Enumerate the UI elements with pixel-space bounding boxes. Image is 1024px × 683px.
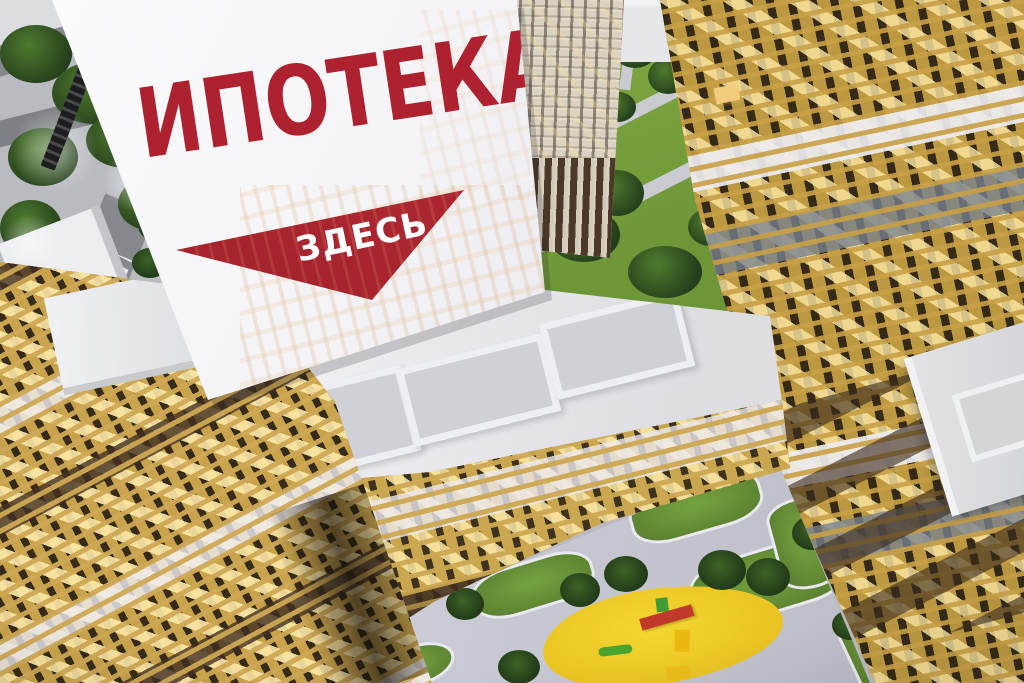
light-glare (0, 215, 60, 270)
play-bench-green (598, 644, 633, 657)
play-seat-yellow (675, 630, 690, 652)
tree (628, 246, 702, 298)
bush (560, 573, 600, 607)
bush (746, 558, 790, 596)
roof-skylight (539, 290, 696, 400)
play-piece-yellow (666, 665, 691, 681)
bush (698, 550, 746, 590)
photo-architectural-model: ИПОТЕКА ЗДЕСЬ (0, 0, 1024, 683)
bush (498, 650, 540, 683)
roof-skylight (396, 333, 562, 447)
bush (604, 556, 648, 592)
